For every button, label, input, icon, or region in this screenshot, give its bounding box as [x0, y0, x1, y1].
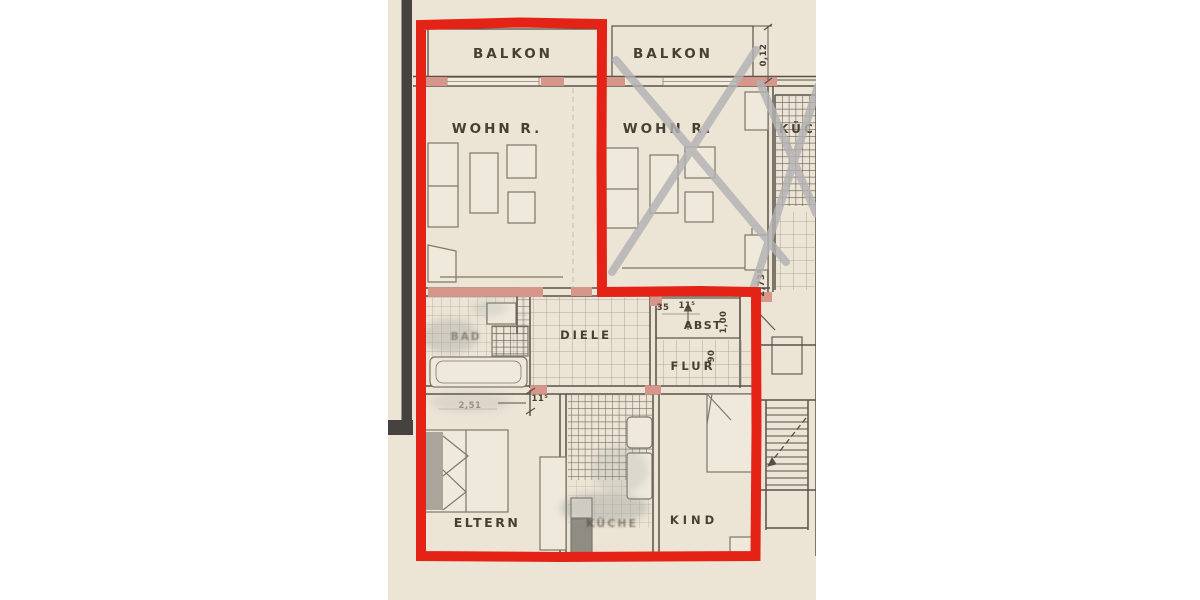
- floorplan-drawing: BALKON BALKON WOHN R. WOHN R. KÜCHE BAD …: [0, 0, 1200, 600]
- bathtub: [430, 357, 527, 387]
- scanned-floorplan-page: BALKON BALKON WOHN R. WOHN R. KÜCHE BAD …: [0, 0, 1200, 600]
- balcony-left-label: BALKON: [473, 46, 553, 62]
- dim-storage-b: 11⁵: [678, 301, 695, 311]
- kitchen-bottom-label: KÜCHE: [586, 516, 638, 530]
- dim-storage-depth: 1,00: [719, 311, 729, 334]
- stove: [627, 417, 652, 448]
- armchair-left-2: [508, 192, 535, 223]
- dim-corridor-door: 90: [707, 350, 717, 363]
- parents-label: ELTERN: [454, 515, 521, 530]
- child-label: KIND: [670, 513, 718, 527]
- dim-balcony-wall: 0,12: [759, 44, 769, 67]
- balcony-right-label: BALKON: [633, 46, 713, 62]
- child-bed: [707, 394, 755, 472]
- table-left: [470, 153, 498, 213]
- bath-label: BAD: [451, 331, 482, 343]
- shower-tiles: [492, 326, 528, 356]
- armchair-right-2: [685, 192, 713, 222]
- armchair-left-1: [507, 145, 536, 178]
- sofa-right: [606, 148, 638, 228]
- dim-storage-a: 35: [657, 303, 670, 313]
- dim-parents-width: 2,51: [459, 401, 482, 411]
- storage-label: ABST: [684, 319, 722, 332]
- hallway-label: DIELE: [560, 328, 612, 342]
- living-left-label: WOHN R.: [452, 121, 542, 137]
- dim-parents-door: 11⁵: [531, 394, 548, 404]
- sofa-left: [428, 143, 458, 227]
